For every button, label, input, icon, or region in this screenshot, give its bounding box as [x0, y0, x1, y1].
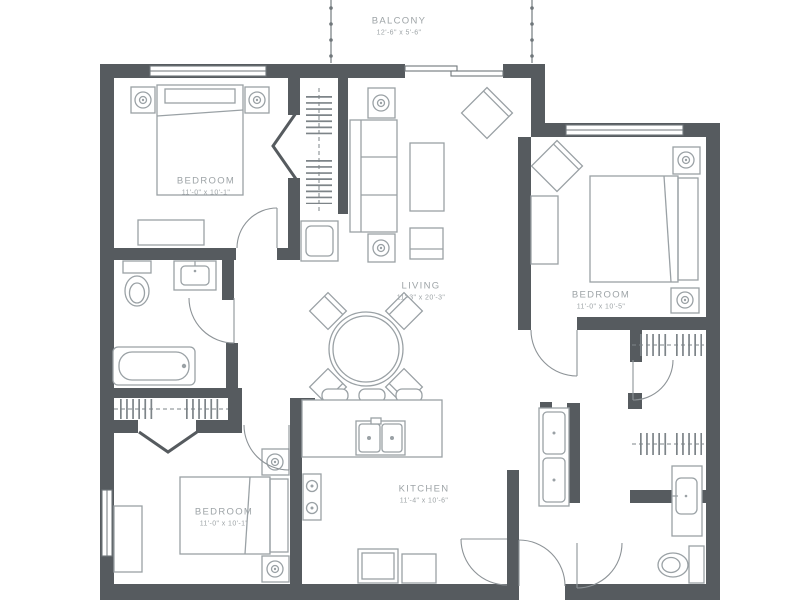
room-name: BEDROOM [572, 290, 630, 300]
cabinet-icon [358, 549, 436, 583]
door-arc [237, 208, 277, 248]
room-name: LIVING [397, 281, 446, 291]
bathtub-icon [113, 347, 195, 385]
room-label-bedroom-top-left: BEDROOM 11'-0" x 10'-1" [177, 176, 235, 196]
armchair-icon [462, 88, 513, 139]
dresser-icon [114, 506, 142, 572]
door-arc [577, 543, 622, 588]
room-dimensions: 11'-4" x 10'-6" [399, 497, 450, 504]
door-arc [531, 330, 577, 376]
toilet-icon [658, 546, 704, 583]
room-dimensions: 12'-6" x 5'-6" [372, 29, 427, 36]
room-dimensions: 11'-0" x 10'-1" [177, 189, 235, 196]
side-table-lamp-icon [368, 88, 395, 118]
armchair-icon [532, 141, 583, 192]
vanity-sink-icon [174, 261, 216, 290]
vanity-sink-icon [672, 466, 702, 536]
range-icon [303, 474, 321, 520]
entry-door-arc [519, 540, 565, 586]
kitchen-sink-icon [356, 418, 405, 455]
dresser-icon [138, 220, 204, 245]
coffee-table-icon [410, 143, 444, 211]
dresser-icon [531, 196, 558, 264]
side-table-lamp-icon [368, 234, 395, 262]
washer-icon [301, 221, 338, 261]
door-arc [189, 298, 234, 343]
room-label-kitchen: KITCHEN 11'-4" x 10'-6" [399, 484, 450, 504]
bed-icon [590, 147, 700, 313]
room-dimensions: 11'-0" x 10'-1" [195, 520, 253, 527]
room-name: BEDROOM [195, 507, 253, 517]
chair-icon [410, 228, 443, 259]
sliding-balcony-door [405, 64, 503, 78]
room-name: KITCHEN [399, 484, 450, 494]
door-arc [461, 539, 507, 585]
balcony-railing [329, 0, 534, 63]
toilet-icon [123, 261, 151, 306]
bifold-closet-door [139, 432, 197, 452]
room-label-bedroom-right: BEDROOM 11'-0" x 10'-5" [572, 290, 630, 310]
room-name: BEDROOM [177, 176, 235, 186]
sofa-icon [350, 120, 397, 232]
room-label-bedroom-bottom-left: BEDROOM 11'-0" x 10'-1" [195, 507, 253, 527]
floor-plan: BALCONY 12'-6" x 5'-6" BEDROOM 11'-0" x … [0, 0, 800, 600]
room-dimensions: 11'-3" x 20'-3" [397, 294, 446, 301]
room-label-balcony: BALCONY 12'-6" x 5'-6" [372, 16, 427, 36]
room-name: BALCONY [372, 16, 427, 26]
room-dimensions: 11'-0" x 10'-5" [572, 303, 630, 310]
shower-icon [539, 408, 569, 506]
room-label-living: LIVING 11'-3" x 20'-3" [397, 281, 446, 301]
bifold-closet-door [273, 113, 296, 179]
